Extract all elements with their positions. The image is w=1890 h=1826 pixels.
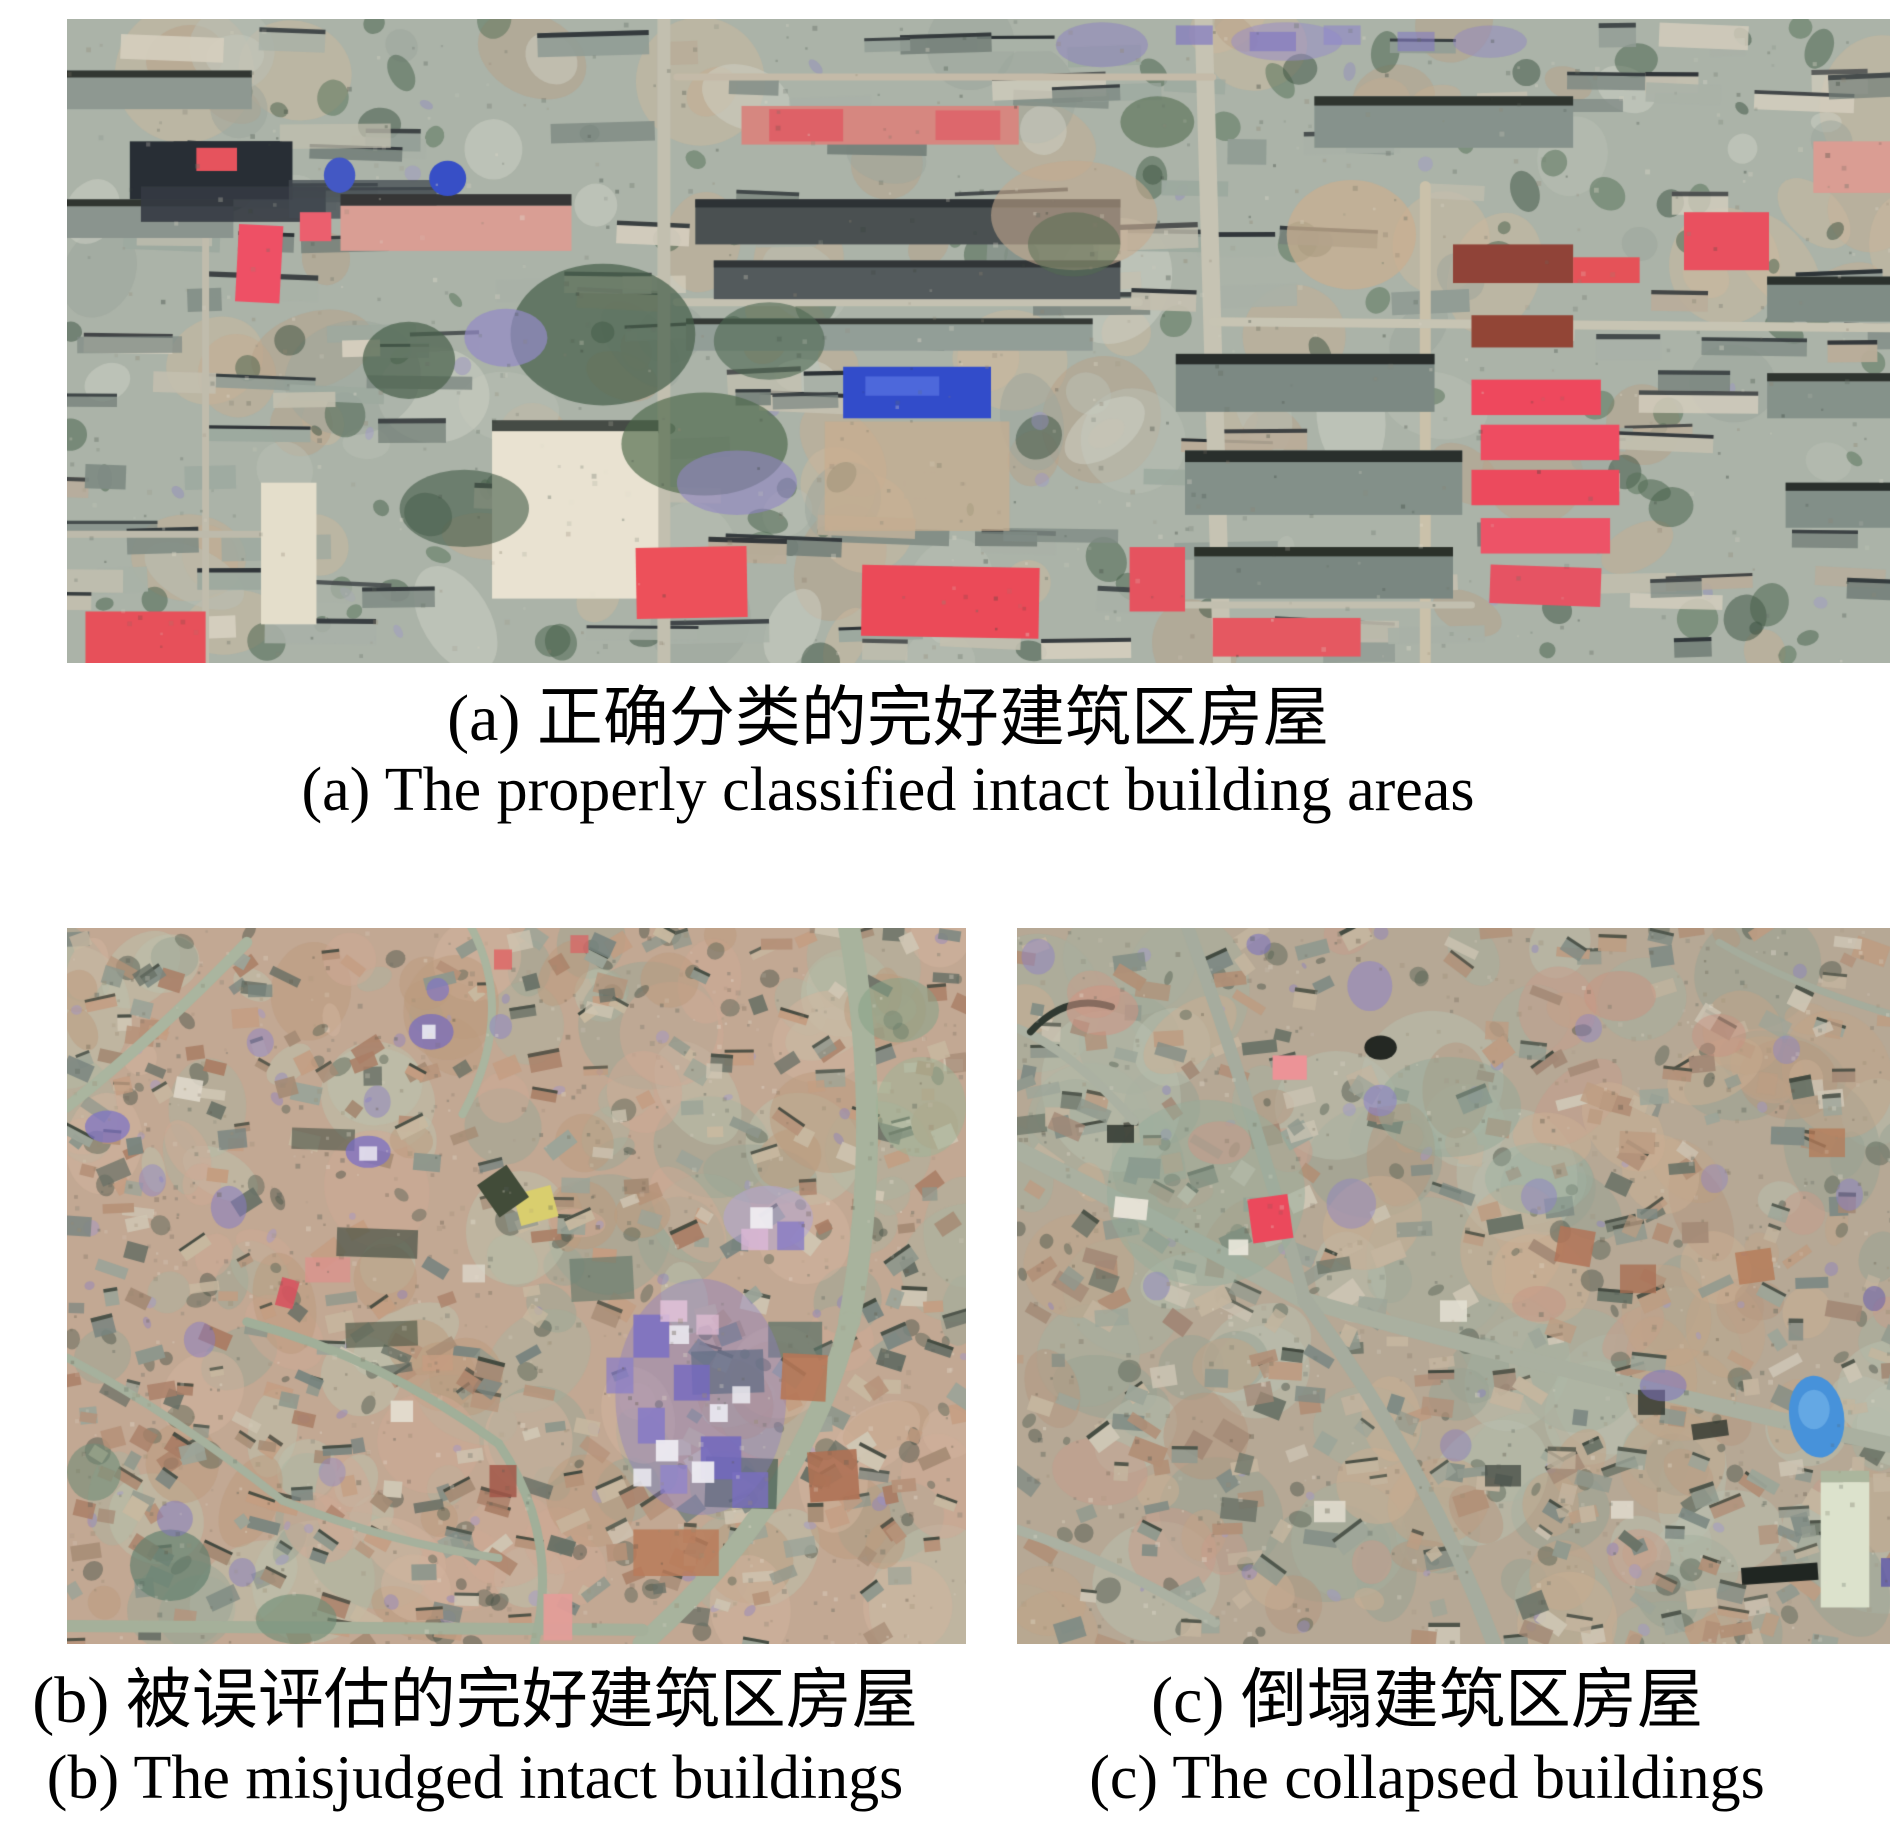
caption-c-english: (c) The collapsed buildings [952,1744,1890,1812]
panel-c [1017,928,1890,1644]
caption-b: (b) 被误评估的完好建筑区房屋 (b) The misjudged intac… [0,1662,950,1812]
panel-a [67,19,1890,663]
caption-c-chinese: (c) 倒塌建筑区房屋 [952,1662,1890,1740]
satellite-image-intact-buildings [67,19,1890,663]
caption-a: (a) 正确分类的完好建筑区房屋 (a) The properly classi… [0,682,1776,824]
panel-b [67,928,966,1644]
caption-a-english: (a) The properly classified intact build… [0,756,1776,824]
paper-figure-page: (a) 正确分类的完好建筑区房屋 (a) The properly classi… [0,0,1890,1826]
satellite-image-misjudged-buildings [67,928,966,1644]
caption-b-chinese: (b) 被误评估的完好建筑区房屋 [0,1662,950,1740]
satellite-image-collapsed-buildings [1017,928,1890,1644]
caption-a-chinese: (a) 正确分类的完好建筑区房屋 [0,682,1776,756]
caption-b-english: (b) The misjudged intact buildings [0,1744,950,1812]
caption-c: (c) 倒塌建筑区房屋 (c) The collapsed buildings [952,1662,1890,1812]
